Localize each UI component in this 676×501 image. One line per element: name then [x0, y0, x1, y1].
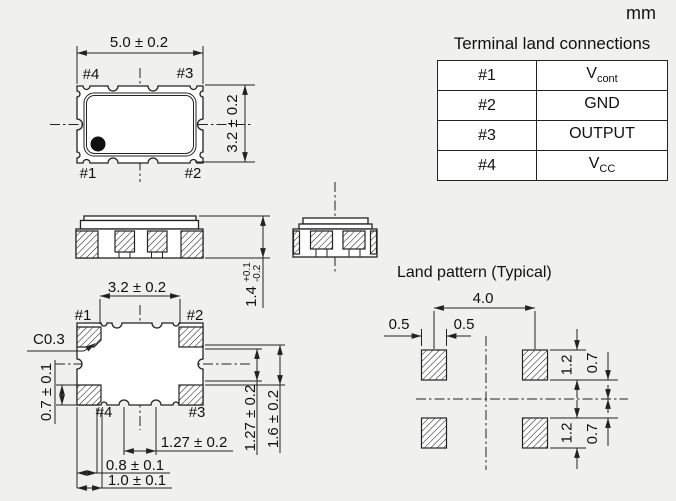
half-width-right-label: 0.5 [454, 316, 475, 333]
bottom-pad-3 [179, 385, 203, 405]
pad-span-dimension: 3.2 ± 0.2 [100, 279, 180, 324]
half-width-left-label: 0.5 [389, 316, 410, 333]
terminal-pad [311, 231, 333, 249]
half-width-dimensions: 0.5 0.5 [384, 316, 474, 346]
pin-label-top-left: #4 [83, 66, 100, 83]
bottom-pad-1 [77, 327, 101, 347]
pin-label-bottom-left: #1 [80, 165, 97, 182]
gap-bottom-label: 0.7 [584, 424, 601, 445]
pad-height-dimension: 0.7 ± 0.1 [38, 360, 79, 424]
datasheet-dimension-drawing: mm Terminal land connections #1 Vcont #2… [0, 0, 676, 501]
terminal-pad [115, 231, 135, 252]
land-pad-bottom-right [523, 418, 548, 448]
land-pattern: Land pattern (Typical) 4.0 0.5 0.5 [384, 264, 628, 470]
bottom-pad-4 [77, 385, 101, 405]
pitch-dimension: 4.0 [434, 290, 535, 349]
right-pitch-dim-label: 1.27 ± 0.2 [242, 385, 259, 452]
terminal-pad [181, 231, 203, 258]
top-view: 5.0 ± 0.2 3.2 ± 0.2 #4 #3 #1 #2 [50, 34, 255, 182]
lid-top [303, 218, 368, 224]
bottom-pitch-dimension: 1.27 ± 0.2 [124, 407, 233, 455]
edge-metallization [294, 231, 300, 254]
land-pitch-dim-label: 4.0 [473, 290, 494, 307]
pad-height-bottom-label: 1.2 [559, 423, 576, 444]
terminal-pad [343, 231, 365, 249]
pad-height-dim-label: 0.7 ± 0.1 [38, 363, 55, 421]
pad-pitch-dim-label: 1.27 ± 0.2 [161, 434, 228, 451]
lid-base [299, 224, 372, 229]
lid-top [84, 216, 196, 221]
land-pad-top-left [422, 350, 447, 380]
end-side-view [293, 182, 377, 272]
mechanical-drawing: 5.0 ± 0.2 3.2 ± 0.2 #4 #3 #1 #2 [0, 0, 676, 501]
pin-label-top-left: #1 [75, 307, 92, 324]
lid-base [81, 221, 199, 230]
thickness-dim-label: 1.4 +0.1 -0.2 [237, 258, 263, 307]
bottom-pad-2 [179, 327, 203, 347]
thickness-dimension: 1.4 +0.1 -0.2 [199, 216, 270, 308]
gap-top-label: 0.7 [584, 353, 601, 374]
pad-width-dim-2-label: 1.0 ± 0.1 [108, 472, 166, 489]
land-pattern-title: Land pattern (Typical) [397, 264, 552, 281]
pin-label-bottom-left: #4 [96, 404, 113, 421]
pin1-marker-dot [91, 137, 106, 152]
top-width-dim-label: 5.0 ± 0.2 [110, 34, 168, 51]
pin-label-bottom-right: #3 [189, 404, 206, 421]
chamfer-dim-label: C0.3 [33, 331, 65, 348]
land-pad-bottom-left [422, 418, 447, 448]
pin-label-top-right: #3 [177, 65, 194, 82]
front-side-view: 1.4 +0.1 -0.2 [76, 216, 270, 308]
pin-label-top-right: #2 [187, 307, 204, 324]
pin-label-bottom-right: #2 [185, 165, 202, 182]
package-body-outline [77, 86, 203, 163]
top-height-dim-label: 3.2 ± 0.2 [224, 94, 241, 152]
terminal-pad [76, 231, 98, 258]
height-dimension: 3.2 ± 0.2 [195, 85, 255, 162]
edge-metallization [371, 231, 377, 254]
bottom-top-dim-label: 3.2 ± 0.2 [108, 279, 166, 296]
land-pad-top-right [523, 350, 548, 380]
terminal-pad [148, 231, 168, 252]
pad-height-top-label: 1.2 [559, 355, 576, 376]
right-span-dim-label: 1.6 ± 0.2 [265, 390, 282, 448]
bottom-view: 3.2 ± 0.2 #1 #2 #4 #3 C0.3 0.7 ± 0.1 1.2… [27, 279, 285, 489]
